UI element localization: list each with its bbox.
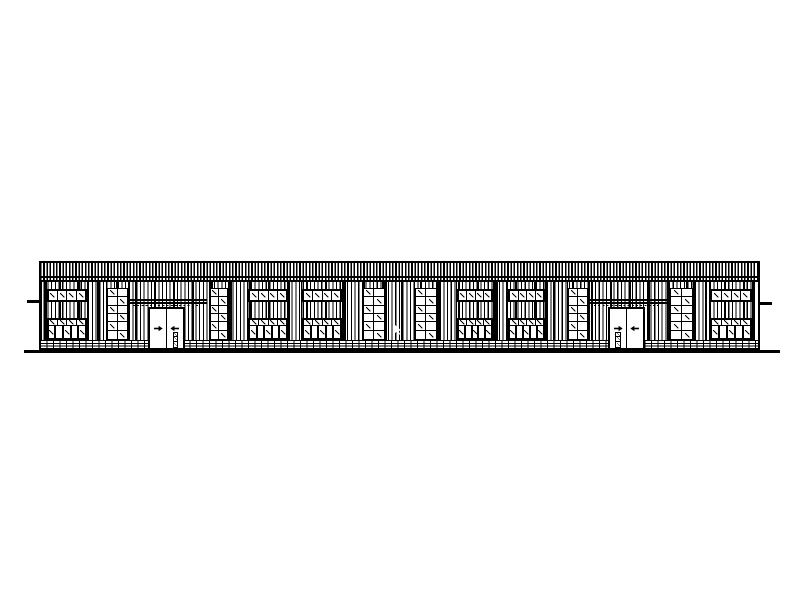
stacked-pane bbox=[578, 297, 587, 305]
stacked-pane bbox=[416, 306, 426, 314]
transom-pane bbox=[269, 320, 278, 325]
window-pane bbox=[49, 326, 57, 338]
canopy-top-line bbox=[127, 299, 207, 301]
upper-strip-window bbox=[457, 289, 493, 302]
transom-pane bbox=[332, 320, 340, 325]
vision-pane bbox=[616, 342, 620, 347]
transom-pane bbox=[484, 320, 491, 325]
stacked-pane bbox=[364, 314, 374, 322]
stacked-pane bbox=[364, 322, 374, 330]
stacked-pane bbox=[364, 289, 374, 297]
window-pane bbox=[732, 291, 742, 300]
window-pane bbox=[510, 291, 519, 300]
door-meeting-stile bbox=[166, 309, 168, 348]
stacked-pane bbox=[578, 331, 587, 339]
stacked-pane bbox=[578, 289, 587, 297]
stacked-pane bbox=[219, 314, 227, 322]
window-pane bbox=[510, 326, 517, 338]
window-pane bbox=[79, 326, 85, 338]
stacked-pane bbox=[416, 322, 426, 330]
window-pane bbox=[304, 326, 312, 338]
stacked-pane bbox=[211, 322, 219, 330]
main-row bbox=[459, 326, 491, 338]
stacked-pane bbox=[426, 331, 436, 339]
stacked-pane bbox=[682, 289, 693, 297]
window-pane bbox=[250, 326, 258, 338]
window-pane bbox=[49, 291, 58, 300]
stacked-pane bbox=[569, 297, 578, 305]
window-pane bbox=[312, 326, 320, 338]
upper-strip-window bbox=[248, 289, 288, 302]
stacked-pane bbox=[671, 331, 682, 339]
window-pane bbox=[476, 291, 484, 300]
lower-shopfront-window bbox=[248, 318, 288, 340]
stacked-pane bbox=[671, 306, 682, 314]
bay-seam-line bbox=[87, 282, 89, 340]
transom-pane bbox=[712, 320, 722, 325]
transom-pane bbox=[58, 320, 67, 325]
stacked-pane bbox=[671, 322, 682, 330]
window-pane bbox=[280, 326, 286, 338]
window-pane bbox=[56, 326, 64, 338]
window-pane bbox=[258, 326, 266, 338]
stacked-pane bbox=[682, 331, 693, 339]
stacked-pane bbox=[569, 306, 578, 314]
stacked-pane bbox=[219, 306, 227, 314]
bay-seam-line bbox=[437, 282, 439, 340]
stacked-pane bbox=[211, 314, 219, 322]
stacked-pane bbox=[416, 314, 426, 322]
parapet-band bbox=[40, 261, 759, 282]
window-pane bbox=[327, 326, 335, 338]
stacked-pane bbox=[211, 331, 219, 339]
transom-pane bbox=[278, 320, 286, 325]
right-girt-tick bbox=[758, 302, 772, 305]
stacked-pane bbox=[374, 306, 384, 314]
stacked-pane bbox=[682, 314, 693, 322]
transom-pane bbox=[459, 320, 467, 325]
window-pane bbox=[538, 326, 543, 338]
window-pane bbox=[273, 326, 281, 338]
elevation-drawing bbox=[0, 0, 791, 593]
stacked-pane bbox=[364, 297, 374, 305]
stacked-pane bbox=[108, 314, 118, 322]
stacked-pane bbox=[118, 289, 128, 297]
ground-line bbox=[24, 350, 780, 353]
stacked-pane bbox=[578, 314, 587, 322]
transom-pane bbox=[49, 320, 58, 325]
stacked-pane bbox=[374, 322, 384, 330]
window-pane bbox=[479, 326, 486, 338]
lower-shopfront-window bbox=[47, 318, 88, 340]
stacked-pane bbox=[569, 289, 578, 297]
building-left-edge bbox=[39, 261, 41, 350]
stacked-window bbox=[568, 288, 588, 340]
window-pane bbox=[459, 326, 466, 338]
stacked-pane bbox=[416, 289, 426, 297]
window-pane bbox=[519, 291, 528, 300]
window-pane bbox=[58, 291, 67, 300]
stacked-pane bbox=[108, 322, 118, 330]
transom-pane bbox=[259, 320, 268, 325]
stacked-pane bbox=[219, 297, 227, 305]
stacked-pane bbox=[219, 331, 227, 339]
bay-seam-line bbox=[228, 282, 230, 340]
door-swing-arrow-icon bbox=[630, 325, 639, 332]
stacked-pane bbox=[108, 289, 118, 297]
stacked-window bbox=[670, 288, 693, 340]
window-pane bbox=[459, 291, 467, 300]
main-row bbox=[304, 326, 340, 338]
stacked-pane bbox=[569, 322, 578, 330]
transom-pane bbox=[536, 320, 544, 325]
window-pane bbox=[259, 291, 268, 300]
window-pane bbox=[720, 326, 728, 338]
upper-strip-window bbox=[710, 289, 752, 302]
lower-shopfront-window bbox=[457, 318, 493, 340]
stacked-pane bbox=[671, 314, 682, 322]
stacked-pane bbox=[426, 289, 436, 297]
double-door bbox=[608, 307, 645, 350]
transom-pane bbox=[467, 320, 475, 325]
window-pane bbox=[744, 326, 750, 338]
stacked-pane bbox=[426, 297, 436, 305]
transom-pane bbox=[476, 320, 484, 325]
stacked-pane bbox=[682, 297, 693, 305]
lower-shopfront-window bbox=[508, 318, 545, 340]
stacked-pane bbox=[118, 297, 128, 305]
stacked-pane bbox=[671, 289, 682, 297]
window-pane bbox=[313, 291, 322, 300]
window-pane bbox=[323, 291, 332, 300]
stacked-pane bbox=[108, 331, 118, 339]
transom-pane bbox=[527, 320, 536, 325]
stacked-pane bbox=[416, 297, 426, 305]
window-pane bbox=[473, 326, 480, 338]
stacked-pane bbox=[416, 331, 426, 339]
stacked-pane bbox=[671, 297, 682, 305]
stacked-pane bbox=[211, 297, 219, 305]
stacked-pane bbox=[211, 306, 219, 314]
canopy-bottom-line bbox=[127, 302, 207, 304]
main-row bbox=[49, 326, 86, 338]
stacked-pane bbox=[682, 306, 693, 314]
bay-seam-line bbox=[128, 282, 130, 340]
stacked-pane bbox=[374, 297, 384, 305]
window-pane bbox=[722, 291, 732, 300]
transom-pane bbox=[250, 320, 259, 325]
transom-pane bbox=[323, 320, 332, 325]
transom-pane bbox=[519, 320, 528, 325]
bay-seam-line bbox=[693, 282, 695, 340]
door-vision-panel bbox=[173, 332, 179, 348]
stacked-pane bbox=[578, 306, 587, 314]
main-row bbox=[250, 326, 286, 338]
stacked-pane bbox=[364, 331, 374, 339]
stacked-window bbox=[107, 288, 128, 340]
eaves-line bbox=[40, 276, 759, 278]
window-pane bbox=[67, 291, 76, 300]
window-pane bbox=[536, 291, 544, 300]
canopy-dashed-line bbox=[133, 305, 199, 307]
transom-pane bbox=[77, 320, 85, 325]
canopy-dashed-line bbox=[594, 305, 659, 307]
window-pane bbox=[736, 326, 744, 338]
left-girt-tick bbox=[27, 300, 41, 303]
lower-shopfront-window bbox=[710, 318, 752, 340]
window-pane bbox=[527, 291, 536, 300]
upper-strip-window bbox=[47, 289, 88, 302]
stacked-pane bbox=[211, 289, 219, 297]
upper-strip-window bbox=[508, 289, 545, 302]
window-pane bbox=[467, 291, 475, 300]
bay-seam-line bbox=[385, 282, 387, 340]
canopy-bottom-line bbox=[588, 302, 667, 304]
stacked-pane bbox=[108, 306, 118, 314]
stacked-window bbox=[363, 288, 385, 340]
stacked-pane bbox=[578, 322, 587, 330]
stacked-pane bbox=[374, 314, 384, 322]
lower-shopfront-window bbox=[302, 318, 342, 340]
bay-seam-line bbox=[752, 282, 754, 340]
door-swing-arrow-icon bbox=[154, 325, 163, 332]
window-pane bbox=[332, 291, 340, 300]
transom-pane bbox=[741, 320, 750, 325]
door-meeting-stile bbox=[626, 309, 628, 348]
window-pane bbox=[486, 326, 491, 338]
building-right-edge bbox=[758, 261, 760, 350]
stacked-pane bbox=[374, 331, 384, 339]
window-pane bbox=[64, 326, 72, 338]
transom-pane bbox=[732, 320, 742, 325]
stacked-pane bbox=[374, 289, 384, 297]
upper-strip-window bbox=[302, 289, 342, 302]
stacked-pane bbox=[426, 322, 436, 330]
bay-seam-line bbox=[342, 282, 344, 340]
window-pane bbox=[265, 326, 273, 338]
stacked-pane bbox=[426, 314, 436, 322]
stacked-pane bbox=[118, 306, 128, 314]
window-pane bbox=[728, 326, 736, 338]
window-pane bbox=[524, 326, 531, 338]
transom-pane bbox=[313, 320, 322, 325]
window-pane bbox=[484, 291, 491, 300]
stacked-pane bbox=[682, 322, 693, 330]
double-door bbox=[148, 307, 185, 350]
main-row bbox=[510, 326, 543, 338]
stacked-pane bbox=[219, 322, 227, 330]
window-pane bbox=[77, 291, 85, 300]
window-pane bbox=[712, 291, 722, 300]
window-pane bbox=[466, 326, 473, 338]
transom-pane bbox=[722, 320, 732, 325]
bay-seam-line bbox=[493, 282, 495, 340]
bay-seam-line bbox=[545, 282, 547, 340]
stacked-pane bbox=[219, 289, 227, 297]
window-pane bbox=[334, 326, 340, 338]
stacked-pane bbox=[118, 322, 128, 330]
vision-pane bbox=[174, 342, 178, 347]
window-pane bbox=[278, 291, 286, 300]
window-pane bbox=[250, 291, 259, 300]
window-pane bbox=[304, 291, 313, 300]
stacked-window bbox=[210, 288, 228, 340]
door-vision-panel bbox=[615, 332, 621, 348]
main-row bbox=[712, 326, 750, 338]
stacked-pane bbox=[569, 331, 578, 339]
stacked-pane bbox=[118, 331, 128, 339]
mouse-cursor bbox=[394, 321, 404, 333]
cursor-arrow-icon bbox=[394, 324, 404, 336]
window-pane bbox=[72, 326, 80, 338]
stacked-pane bbox=[118, 314, 128, 322]
window-pane bbox=[741, 291, 750, 300]
stacked-pane bbox=[108, 297, 118, 305]
stacked-window bbox=[415, 288, 437, 340]
stacked-pane bbox=[364, 306, 374, 314]
transom-pane bbox=[67, 320, 76, 325]
stacked-pane bbox=[569, 314, 578, 322]
bay-seam-line bbox=[588, 282, 590, 340]
stacked-pane bbox=[426, 306, 436, 314]
window-pane bbox=[319, 326, 327, 338]
transom-pane bbox=[304, 320, 313, 325]
window-pane bbox=[269, 291, 278, 300]
transom-pane bbox=[510, 320, 519, 325]
bay-seam-line bbox=[288, 282, 290, 340]
window-pane bbox=[517, 326, 524, 338]
window-pane bbox=[712, 326, 720, 338]
canopy-top-line bbox=[588, 299, 667, 301]
window-pane bbox=[531, 326, 538, 338]
